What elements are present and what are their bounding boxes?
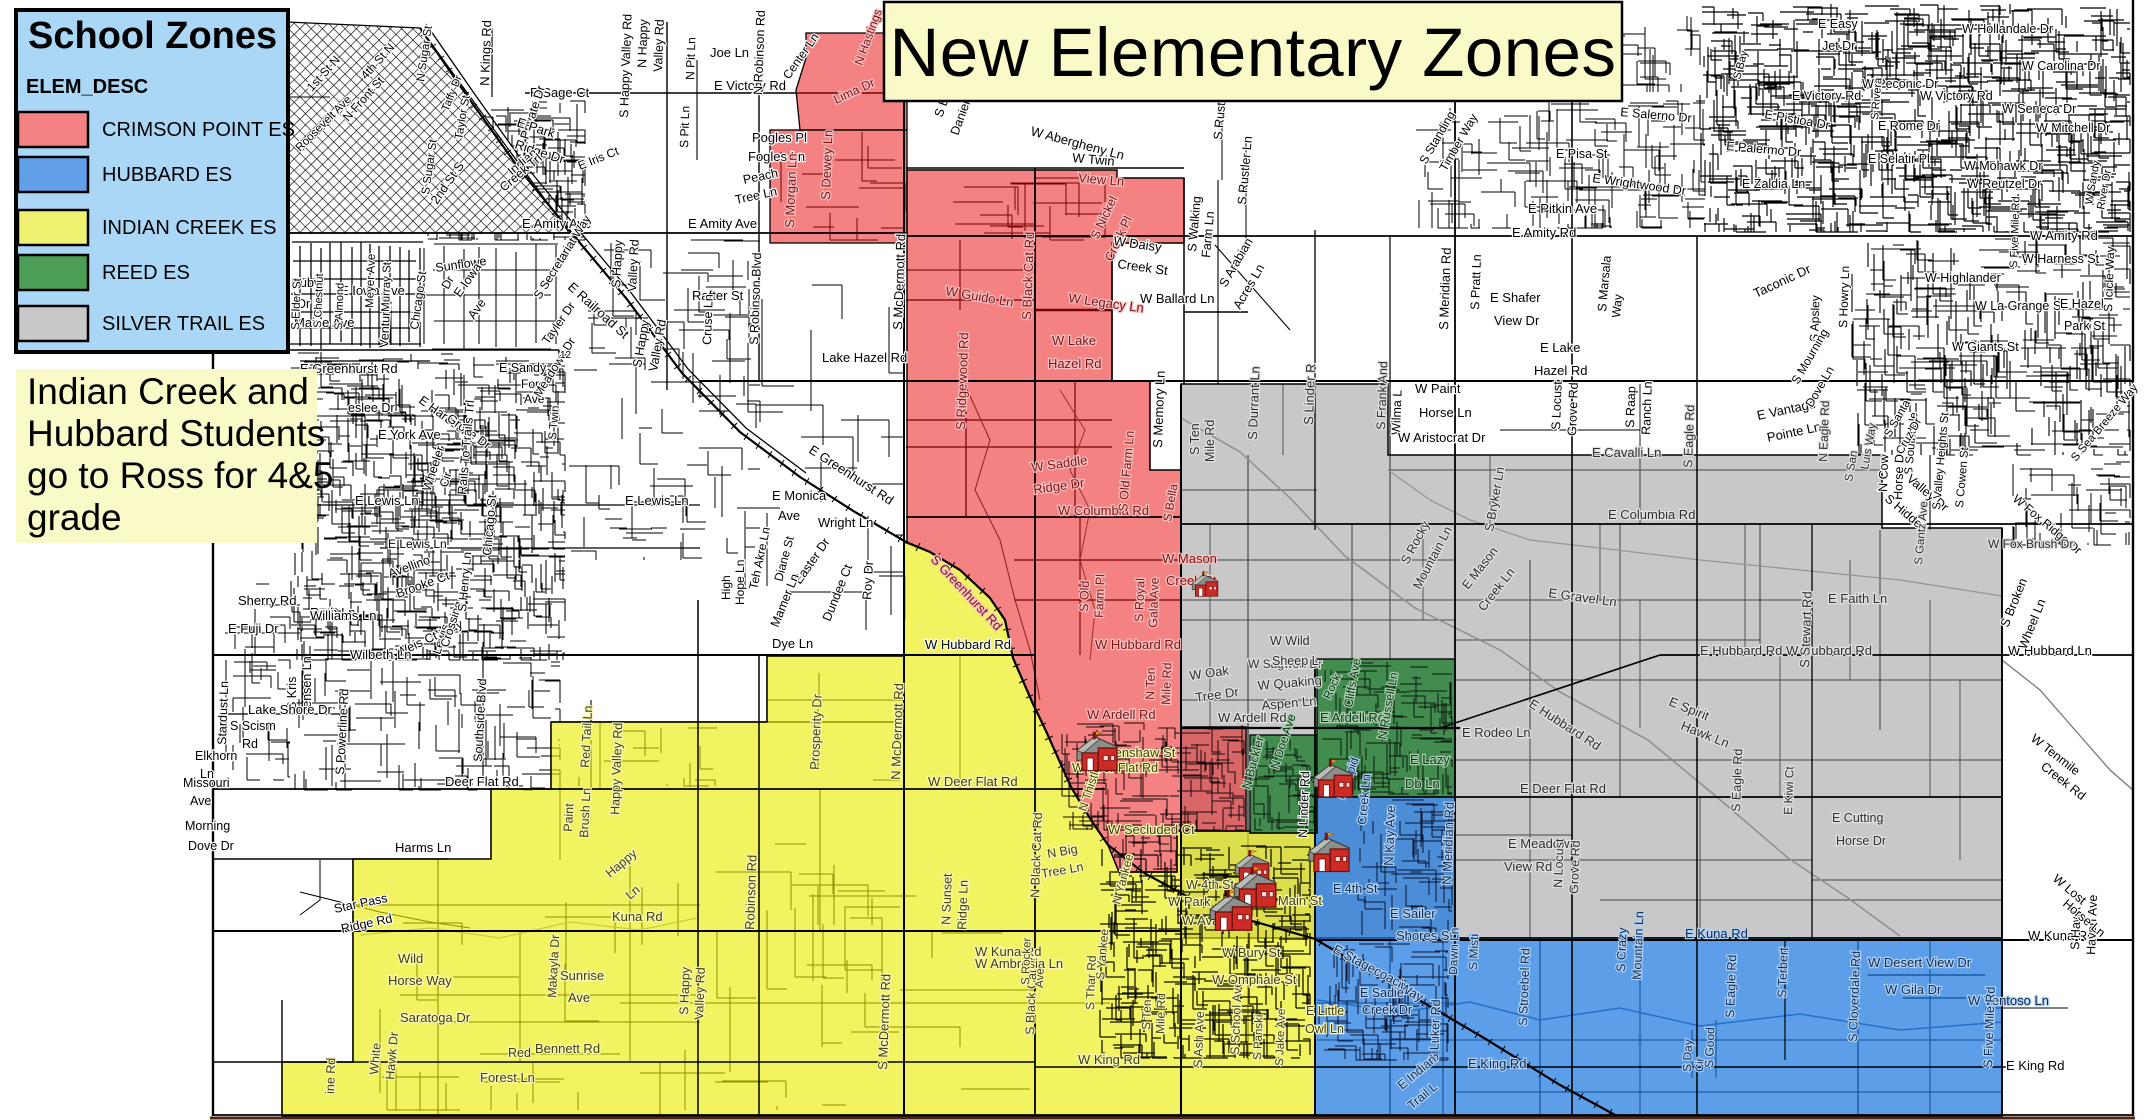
- svg-text:High: High: [719, 575, 733, 600]
- svg-text:Ave: Ave: [1034, 968, 1047, 988]
- svg-text:Wilma L: Wilma L: [1389, 389, 1405, 435]
- svg-text:E Faith Ln: E Faith Ln: [1828, 591, 1887, 606]
- svg-text:E Hazel: E Hazel: [2060, 297, 2104, 311]
- svg-text:CRIMSON POINT ES: CRIMSON POINT ES: [102, 119, 295, 141]
- svg-text:S Chestnut: S Chestnut: [312, 273, 326, 328]
- svg-text:E Hubbard Rd W Hubbard Rd: E Hubbard Rd W Hubbard Rd: [1700, 643, 1872, 658]
- svg-text:Paint: Paint: [561, 802, 576, 832]
- svg-text:E Lewis Ln: E Lewis Ln: [388, 537, 447, 551]
- svg-text:E Easy: E Easy: [1818, 17, 1858, 31]
- svg-text:E Columbia Rd: E Columbia Rd: [1608, 507, 1695, 522]
- svg-text:Dove Dr: Dove Dr: [188, 839, 234, 853]
- svg-text:N Happy: N Happy: [635, 18, 651, 68]
- svg-text:INDIAN CREEK ES: INDIAN CREEK ES: [102, 217, 276, 239]
- svg-text:E Shafer: E Shafer: [1490, 290, 1541, 305]
- svg-text:Wilbeth Ln: Wilbeth Ln: [350, 647, 411, 662]
- svg-text:Wright Ln: Wright Ln: [818, 515, 873, 530]
- svg-text:N Linder Rd: N Linder Rd: [1296, 771, 1312, 838]
- svg-text:E Amity Ave: E Amity Ave: [688, 216, 757, 231]
- svg-text:Missouri: Missouri: [183, 776, 230, 790]
- svg-text:S Terbert: S Terbert: [1775, 947, 1791, 998]
- svg-text:S Scism: S Scism: [230, 719, 276, 733]
- svg-text:W Lake: W Lake: [1052, 333, 1096, 348]
- svg-text:Db Ln: Db Ln: [1405, 776, 1440, 791]
- svg-text:E Fuji Dr: E Fuji Dr: [228, 621, 279, 636]
- svg-text:S Jake Ave: S Jake Ave: [1274, 1008, 1288, 1066]
- svg-text:W Hubbard Rd: W Hubbard Rd: [1095, 637, 1181, 652]
- svg-text:S Rocker: S Rocker: [1020, 937, 1034, 985]
- svg-text:Park St: Park St: [2064, 319, 2106, 333]
- svg-text:Cir: Cir: [1694, 1057, 1706, 1072]
- svg-text:SILVER TRAIL ES: SILVER TRAIL ES: [102, 313, 265, 335]
- svg-text:W Ventoso Ln: W Ventoso Ln: [1968, 993, 2049, 1008]
- svg-text:S Locust: S Locust: [1549, 380, 1565, 430]
- svg-text:White: White: [367, 1042, 384, 1075]
- svg-text:Ave: Ave: [568, 990, 590, 1005]
- svg-text:W Giants St: W Giants St: [1952, 340, 2019, 354]
- svg-text:S Linder R: S Linder R: [1301, 363, 1318, 425]
- svg-text:W Secluded Ct: W Secluded Ct: [1108, 822, 1195, 837]
- svg-text:W King Rd: W King Rd: [1078, 1052, 1140, 1067]
- svg-text:S Dewey Ln: S Dewey Ln: [818, 130, 835, 201]
- svg-text:E Rodeo Ln: E Rodeo Ln: [1462, 725, 1531, 740]
- svg-text:go to Ross for 4&5: go to Ross for 4&5: [27, 455, 333, 496]
- svg-text:Sheep L: Sheep L: [1272, 654, 1319, 668]
- svg-text:S Ash Ave: S Ash Ave: [1191, 1011, 1207, 1068]
- svg-text:S Ten: S Ten: [1139, 999, 1154, 1030]
- svg-text:S School Ave: S School Ave: [1228, 980, 1245, 1055]
- svg-text:S Happy: S Happy: [609, 239, 626, 288]
- svg-text:S Misti: S Misti: [1466, 934, 1481, 970]
- svg-text:Pogles Pl: Pogles Pl: [752, 130, 807, 145]
- svg-text:N Black Cat Rd: N Black Cat Rd: [1028, 812, 1045, 898]
- svg-text:E Zaldia Ln: E Zaldia Ln: [1742, 177, 1805, 191]
- svg-text:E Deer Flat Rd: E Deer Flat Rd: [1520, 781, 1606, 796]
- svg-text:Hope Ln: Hope Ln: [733, 560, 747, 605]
- svg-text:E Rome Dr: E Rome Dr: [1878, 119, 1940, 133]
- svg-text:S Morgan Ln: S Morgan Ln: [782, 153, 800, 228]
- svg-text:S Royal: S Royal: [1132, 578, 1148, 622]
- svg-text:New Elementary Zones: New Elementary Zones: [889, 14, 1616, 91]
- svg-text:Ridge Ln: Ridge Ln: [955, 880, 971, 931]
- svg-text:E Victory Rd: E Victory Rd: [1792, 89, 1861, 103]
- svg-text:N Kings Rd: N Kings Rd: [477, 20, 494, 86]
- svg-text:W Seneca Dr: W Seneca Dr: [2002, 102, 2076, 116]
- svg-text:Mile Rd: Mile Rd: [1203, 420, 1217, 462]
- svg-text:E Ardell Rd: E Ardell Rd: [1320, 710, 1385, 725]
- svg-text:Mountain Ln: Mountain Ln: [1630, 911, 1646, 980]
- svg-text:eslee Dr: eslee Dr: [348, 401, 395, 415]
- svg-text:Grove Rd: Grove Rd: [1567, 840, 1583, 894]
- svg-text:E Lewis Ln: E Lewis Ln: [355, 493, 419, 508]
- svg-text:S Panski: S Panski: [1252, 1014, 1266, 1060]
- svg-text:E Lewis Ln: E Lewis Ln: [625, 493, 689, 508]
- svg-text:Prosperity Dr: Prosperity Dr: [807, 693, 825, 770]
- svg-text:S Old: S Old: [1077, 580, 1092, 612]
- svg-text:Ranch Ln: Ranch Ln: [1639, 381, 1655, 435]
- svg-text:E Selatir Pl: E Selatir Pl: [1868, 152, 1930, 166]
- svg-text:REED ES: REED ES: [102, 262, 190, 284]
- svg-text:W Amity Rd: W Amity Rd: [2030, 228, 2098, 243]
- svg-text:W Carolina Dr: W Carolina Dr: [2022, 59, 2101, 73]
- svg-text:S Happy: S Happy: [677, 966, 693, 1015]
- svg-text:N Eagle Rd: N Eagle Rd: [1816, 400, 1832, 462]
- svg-text:E King Rd: E King Rd: [2006, 1058, 2065, 1073]
- svg-text:N Robinson Rd: N Robinson Rd: [751, 10, 768, 95]
- svg-text:W Harness St: W Harness St: [2022, 252, 2100, 266]
- svg-text:N Kay Ave: N Kay Ave: [1381, 805, 1398, 866]
- svg-text:View Dr: View Dr: [1494, 313, 1540, 328]
- svg-text:W Reutzel Dr: W Reutzel Dr: [1967, 177, 2041, 191]
- svg-text:W Aristocrat Dr: W Aristocrat Dr: [1398, 430, 1486, 445]
- svg-text:Horse Ln: Horse Ln: [1419, 405, 1472, 420]
- svg-text:W Ballard Ln: W Ballard Ln: [1140, 291, 1214, 306]
- svg-text:S Almond: S Almond: [333, 283, 347, 330]
- svg-text:E Lazy: E Lazy: [1410, 752, 1450, 767]
- svg-text:Lake Hazel Rd: Lake Hazel Rd: [822, 350, 907, 365]
- svg-text:E Little: E Little: [1306, 1004, 1344, 1018]
- svg-text:W Fox Brush Dr: W Fox Brush Dr: [1988, 537, 2073, 551]
- svg-text:Ave: Ave: [778, 508, 800, 523]
- svg-text:Creek Dr: Creek Dr: [1362, 1003, 1412, 1017]
- svg-text:S Raap: S Raap: [1623, 386, 1638, 428]
- svg-text:S Crazy: S Crazy: [1614, 926, 1630, 972]
- svg-text:S Eagle Rd: S Eagle Rd: [1723, 954, 1739, 1018]
- svg-text:S Eagle Rd: S Eagle Rd: [1729, 748, 1745, 812]
- svg-text:Hubbard Students: Hubbard Students: [27, 413, 325, 454]
- svg-text:Meyer Ave: Meyer Ave: [364, 254, 378, 309]
- svg-text:E York Ave: E York Ave: [378, 427, 441, 442]
- svg-text:E Monica: E Monica: [772, 488, 827, 503]
- svg-text:ELEM_DESC: ELEM_DESC: [26, 76, 148, 98]
- svg-text:Hazel Rd: Hazel Rd: [1048, 356, 1101, 371]
- svg-text:N Pit Ln: N Pit Ln: [683, 37, 698, 80]
- svg-text:E Lake: E Lake: [1540, 340, 1580, 355]
- svg-text:Dawn Ln: Dawn Ln: [1446, 927, 1462, 975]
- svg-text:N Sunset: N Sunset: [939, 873, 955, 925]
- svg-text:W Columbia Rd: W Columbia Rd: [1058, 503, 1149, 518]
- svg-text:Sunrise: Sunrise: [560, 968, 604, 983]
- svg-text:Hazel Rd: Hazel Rd: [1534, 363, 1587, 378]
- svg-text:S Meridian Rd: S Meridian Rd: [1436, 247, 1454, 330]
- svg-text:Lake Shore Dr: Lake Shore Dr: [248, 702, 332, 717]
- svg-text:W Deer Flat Rd: W Deer Flat Rd: [928, 774, 1018, 789]
- svg-text:Jet Dr: Jet Dr: [1822, 39, 1855, 53]
- svg-text:S Day: S Day: [1680, 1039, 1695, 1072]
- svg-text:12: 12: [560, 350, 572, 361]
- svg-text:Joe Ln: Joe Ln: [710, 45, 749, 60]
- svg-text:E Sadie: E Sadie: [1360, 986, 1404, 1000]
- svg-text:Cruse Ln: Cruse Ln: [700, 294, 716, 345]
- svg-text:E Sailer: E Sailer: [1390, 906, 1436, 921]
- svg-text:Harms Ln: Harms Ln: [395, 840, 451, 855]
- svg-text:E Kiwi Ct: E Kiwi Ct: [1781, 765, 1797, 815]
- svg-text:W Mohawk Dr: W Mohawk Dr: [1964, 159, 2042, 173]
- svg-text:Bennett Rd: Bennett Rd: [535, 1041, 600, 1056]
- svg-text:W Mitchell Dr: W Mitchell Dr: [2036, 121, 2110, 135]
- svg-text:S Five Mile Rd: S Five Mile Rd: [1981, 986, 1998, 1068]
- svg-text:Deer Flat Rd: Deer Flat Rd: [445, 774, 519, 789]
- svg-text:Rafter St: Rafter St: [692, 288, 744, 303]
- svg-text:Owl Ln: Owl Ln: [1305, 1022, 1344, 1036]
- svg-text:S Eagle Rd: S Eagle Rd: [1681, 404, 1697, 468]
- svg-text:Farm Pl: Farm Pl: [1092, 574, 1108, 618]
- svg-text:W Mason: W Mason: [1162, 551, 1217, 566]
- svg-text:S Icicle Way: S Icicle Way: [2101, 246, 2117, 312]
- svg-text:Indian Creek and: Indian Creek and: [27, 371, 309, 412]
- svg-text:W Ardell Rd: W Ardell Rd: [1087, 707, 1156, 722]
- svg-text:S Pit Ln: S Pit Ln: [677, 106, 692, 148]
- svg-text:N Meridian Rd: N Meridian Rd: [1439, 802, 1457, 886]
- svg-text:S Thar Rd: S Thar Rd: [1083, 955, 1099, 1010]
- svg-text:Forest Ln: Forest Ln: [480, 1070, 535, 1085]
- svg-text:E Victory Rd: E Victory Rd: [714, 78, 786, 93]
- svg-text:S Elder St: S Elder St: [290, 277, 304, 330]
- svg-text:S Frank And: S Frank And: [1374, 361, 1390, 430]
- svg-text:Horse Dr: Horse Dr: [1836, 834, 1886, 848]
- svg-text:Valley Rd: Valley Rd: [692, 967, 708, 1020]
- svg-text:W Omphale St: W Omphale St: [1212, 972, 1297, 987]
- svg-text:Horse Way: Horse Way: [388, 973, 452, 988]
- svg-text:S Memory Ln: S Memory Ln: [1150, 370, 1168, 448]
- svg-text:S Howry Ln: S Howry Ln: [1836, 266, 1852, 328]
- svg-text:W Desert View Dr: W Desert View Dr: [1868, 955, 1972, 970]
- svg-text:Valley Rd: Valley Rd: [651, 19, 667, 72]
- svg-text:Elkhorn: Elkhorn: [195, 749, 237, 763]
- svg-text:S Stroebel Rd: S Stroebel Rd: [1516, 948, 1533, 1026]
- svg-text:Ave: Ave: [190, 794, 211, 808]
- svg-text:Grove Rd: Grove Rd: [1565, 382, 1581, 436]
- svg-text:E Amity Rd: E Amity Rd: [1512, 225, 1576, 240]
- svg-text:W Wild: W Wild: [1270, 634, 1310, 648]
- svg-text:W Bury St: W Bury St: [1222, 945, 1281, 960]
- svg-text:Stardust Ln: Stardust Ln: [215, 681, 231, 745]
- svg-text:W Hubbard Rd: W Hubbard Rd: [925, 637, 1011, 652]
- svg-text:S Stewart Rd: S Stewart Rd: [1797, 591, 1815, 668]
- svg-text:Murray St: Murray St: [380, 261, 394, 312]
- svg-text:Way: Way: [1609, 294, 1625, 319]
- svg-text:grade: grade: [27, 497, 122, 538]
- svg-text:W Gila Dr: W Gila Dr: [1885, 982, 1942, 997]
- svg-text:Valley Rd: Valley Rd: [625, 239, 642, 292]
- svg-text:S Pratt Ln: S Pratt Ln: [1468, 254, 1484, 310]
- svg-text:Sherry Rd: Sherry Rd: [238, 593, 297, 608]
- svg-text:Wild: Wild: [398, 951, 423, 966]
- svg-text:E Cavalli Ln: E Cavalli Ln: [1592, 445, 1661, 460]
- svg-text:S Black Cat Rd: S Black Cat Rd: [1019, 231, 1037, 320]
- svg-text:School Zones: School Zones: [28, 15, 277, 57]
- svg-text:Mile Rd: Mile Rd: [1153, 993, 1168, 1034]
- svg-text:W Park: W Park: [1168, 894, 1211, 909]
- svg-text:E 4th St: E 4th St: [1333, 882, 1378, 896]
- svg-text:W Ardell Rd: W Ardell Rd: [1218, 710, 1287, 725]
- svg-text:HUBBARD ES: HUBBARD ES: [102, 164, 232, 186]
- svg-text:Morning: Morning: [185, 819, 230, 833]
- svg-text:N Cow: N Cow: [1876, 453, 1891, 492]
- svg-text:E Cutting: E Cutting: [1832, 811, 1883, 825]
- svg-text:S Five Mile Rd: S Five Mile Rd: [2008, 196, 2022, 268]
- svg-text:Rd: Rd: [242, 737, 258, 751]
- svg-text:Brush Ln: Brush Ln: [577, 787, 594, 838]
- svg-text:Williams Ln: Williams Ln: [310, 608, 376, 623]
- svg-text:Gala Ave: Gala Ave: [1146, 577, 1162, 628]
- svg-text:N Locust: N Locust: [1551, 838, 1567, 888]
- svg-text:E Pisa St: E Pisa St: [1556, 147, 1608, 161]
- svg-text:W La Grange St: W La Grange St: [1975, 299, 2065, 313]
- svg-text:W Highlander: W Highlander: [1925, 271, 2001, 285]
- svg-text:W Victory Rd: W Victory Rd: [1920, 89, 1993, 103]
- svg-text:Shores St: Shores St: [1396, 928, 1453, 943]
- svg-text:Red: Red: [508, 1046, 531, 1060]
- svg-text:S Durrant Ln: S Durrant Ln: [1245, 366, 1263, 440]
- svg-text:Robinson Rd: Robinson Rd: [742, 854, 760, 930]
- svg-text:Dye Ln: Dye Ln: [772, 636, 813, 651]
- svg-text:Roy Dr: Roy Dr: [860, 561, 876, 601]
- svg-text:S Ten: S Ten: [1188, 423, 1202, 455]
- svg-text:E Sandy: E Sandy: [499, 361, 547, 375]
- svg-text:N Ten: N Ten: [1143, 667, 1158, 700]
- svg-text:Mile Rd: Mile Rd: [1159, 662, 1174, 705]
- svg-text:E Kuna Rd: E Kuna Rd: [1685, 926, 1748, 941]
- svg-text:Saratoga Dr: Saratoga Dr: [400, 1010, 471, 1025]
- svg-text:W Hollandale Dr: W Hollandale Dr: [1962, 22, 2053, 36]
- svg-text:E Pitkin Ave: E Pitkin Ave: [1528, 201, 1597, 216]
- svg-text:W Paint: W Paint: [1415, 381, 1461, 396]
- svg-text:ine Rd: ine Rd: [323, 1057, 338, 1094]
- svg-text:View Rd: View Rd: [1504, 859, 1552, 874]
- svg-text:E King Rd: E King Rd: [1468, 1056, 1527, 1071]
- svg-text:Kuna Rd: Kuna Rd: [612, 909, 663, 924]
